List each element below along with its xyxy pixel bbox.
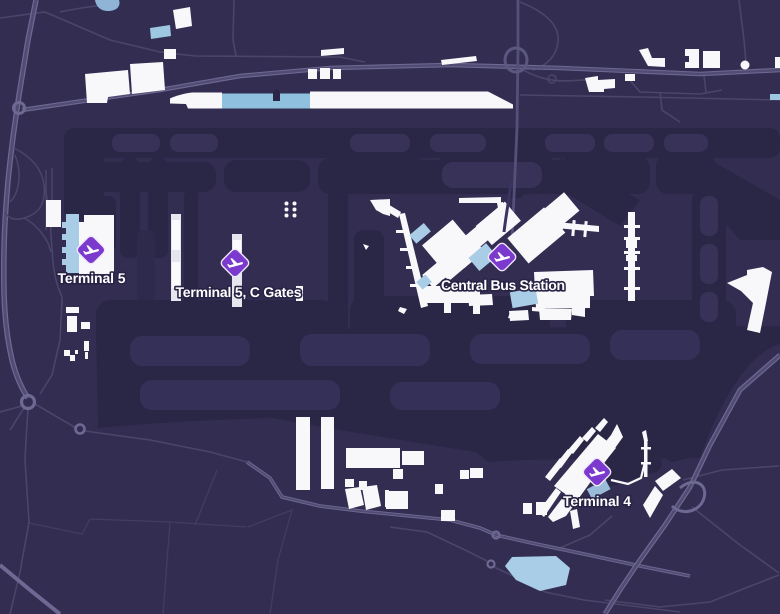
svg-text:Terminal 5: Terminal 5: [58, 270, 126, 286]
svg-text:Central Bus Station: Central Bus Station: [441, 277, 565, 293]
svg-text:Terminal 5, C Gates: Terminal 5, C Gates: [176, 284, 302, 300]
svg-text:Terminal 4: Terminal 4: [563, 493, 631, 509]
